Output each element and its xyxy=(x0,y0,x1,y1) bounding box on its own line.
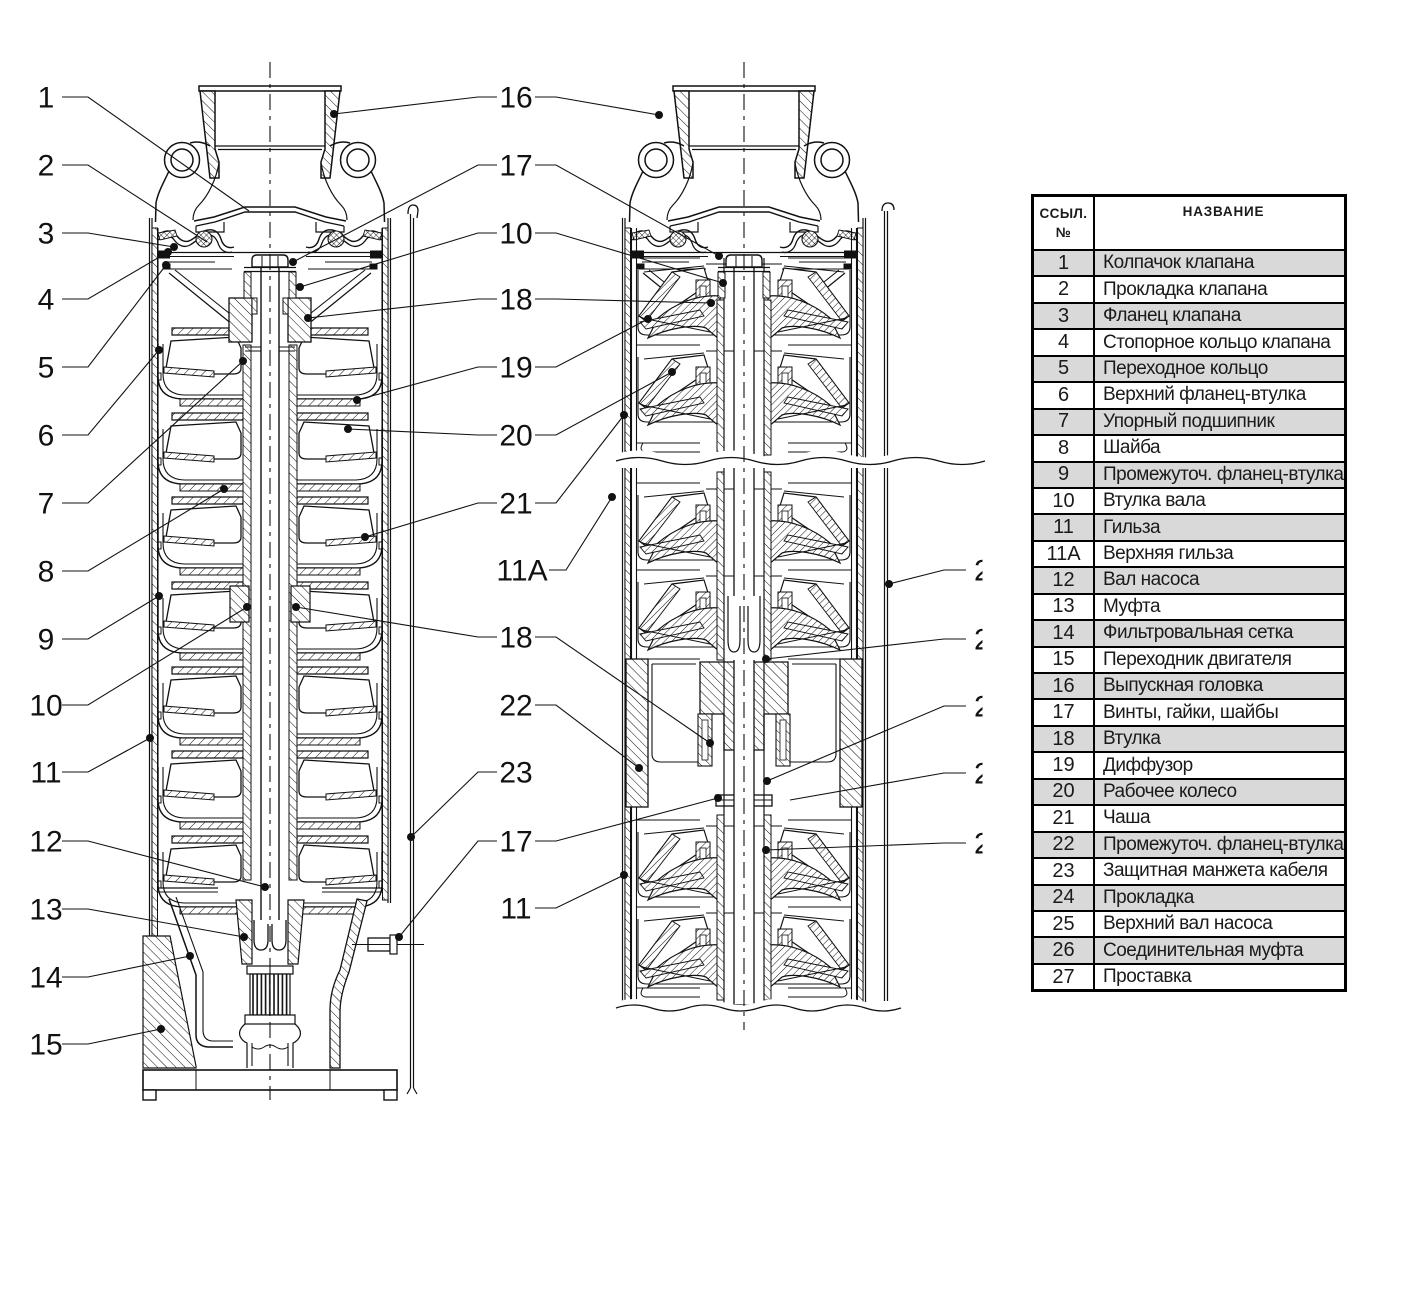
svg-text:13: 13 xyxy=(29,894,62,927)
svg-text:22: 22 xyxy=(499,690,532,723)
svg-text:19: 19 xyxy=(499,352,532,385)
svg-text:6: 6 xyxy=(38,420,55,453)
svg-text:10: 10 xyxy=(29,690,62,723)
svg-text:12: 12 xyxy=(29,826,62,859)
svg-text:21: 21 xyxy=(499,488,532,521)
svg-text:17: 17 xyxy=(499,150,532,183)
svg-text:8: 8 xyxy=(38,556,55,589)
svg-text:2: 2 xyxy=(974,758,991,791)
svg-text:20: 20 xyxy=(499,420,532,453)
svg-text:15: 15 xyxy=(29,1029,62,1062)
svg-text:4: 4 xyxy=(38,284,55,317)
svg-text:18: 18 xyxy=(499,284,532,317)
svg-text:2: 2 xyxy=(974,555,991,588)
svg-text:18: 18 xyxy=(499,622,532,655)
svg-text:2: 2 xyxy=(974,624,991,657)
svg-text:16: 16 xyxy=(499,82,532,115)
svg-text:10: 10 xyxy=(499,218,532,251)
svg-text:11: 11 xyxy=(500,893,531,926)
svg-text:23: 23 xyxy=(499,757,532,790)
svg-text:2: 2 xyxy=(974,828,991,861)
svg-text:14: 14 xyxy=(29,962,62,995)
svg-text:17: 17 xyxy=(499,826,532,859)
svg-text:2: 2 xyxy=(974,691,991,724)
svg-text:2: 2 xyxy=(38,150,55,183)
svg-text:11: 11 xyxy=(30,757,61,790)
svg-text:3: 3 xyxy=(38,218,55,251)
svg-text:1: 1 xyxy=(38,82,55,115)
svg-text:5: 5 xyxy=(38,352,55,385)
svg-text:9: 9 xyxy=(38,624,55,657)
svg-text:7: 7 xyxy=(38,488,55,521)
svg-text:11A: 11A xyxy=(496,555,547,588)
